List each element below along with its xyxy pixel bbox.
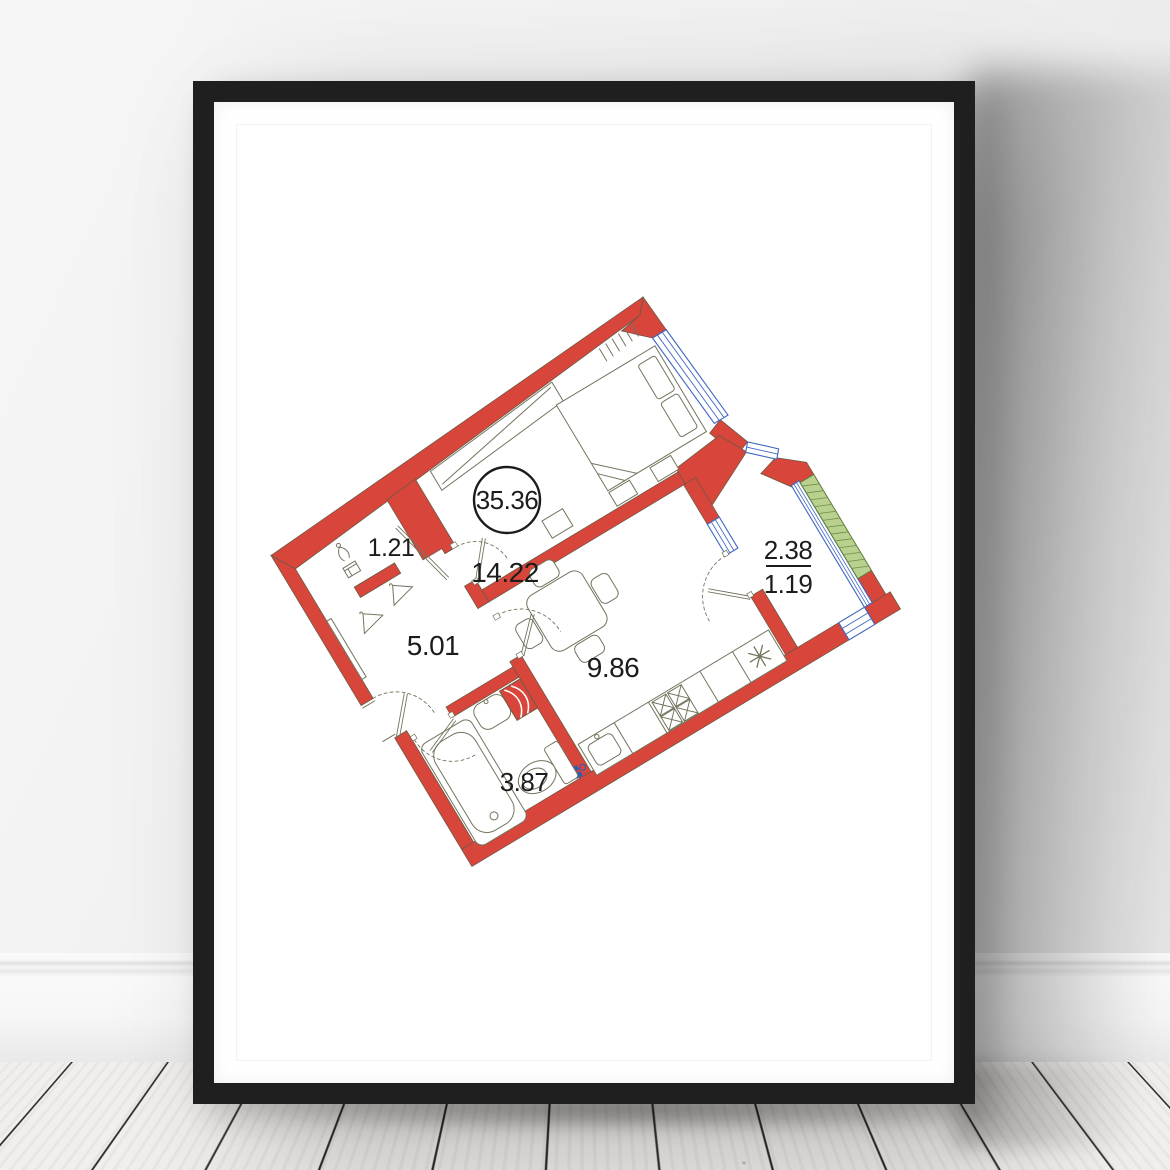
poster-paper (236, 124, 932, 1061)
scene: 35.36 14.22 1.21 5.01 9.86 3.87 2.38 1.1… (0, 0, 1170, 1170)
frame-wall-shadow (970, 70, 1170, 1070)
poster-frame (193, 81, 975, 1104)
frame-mat (214, 102, 954, 1083)
